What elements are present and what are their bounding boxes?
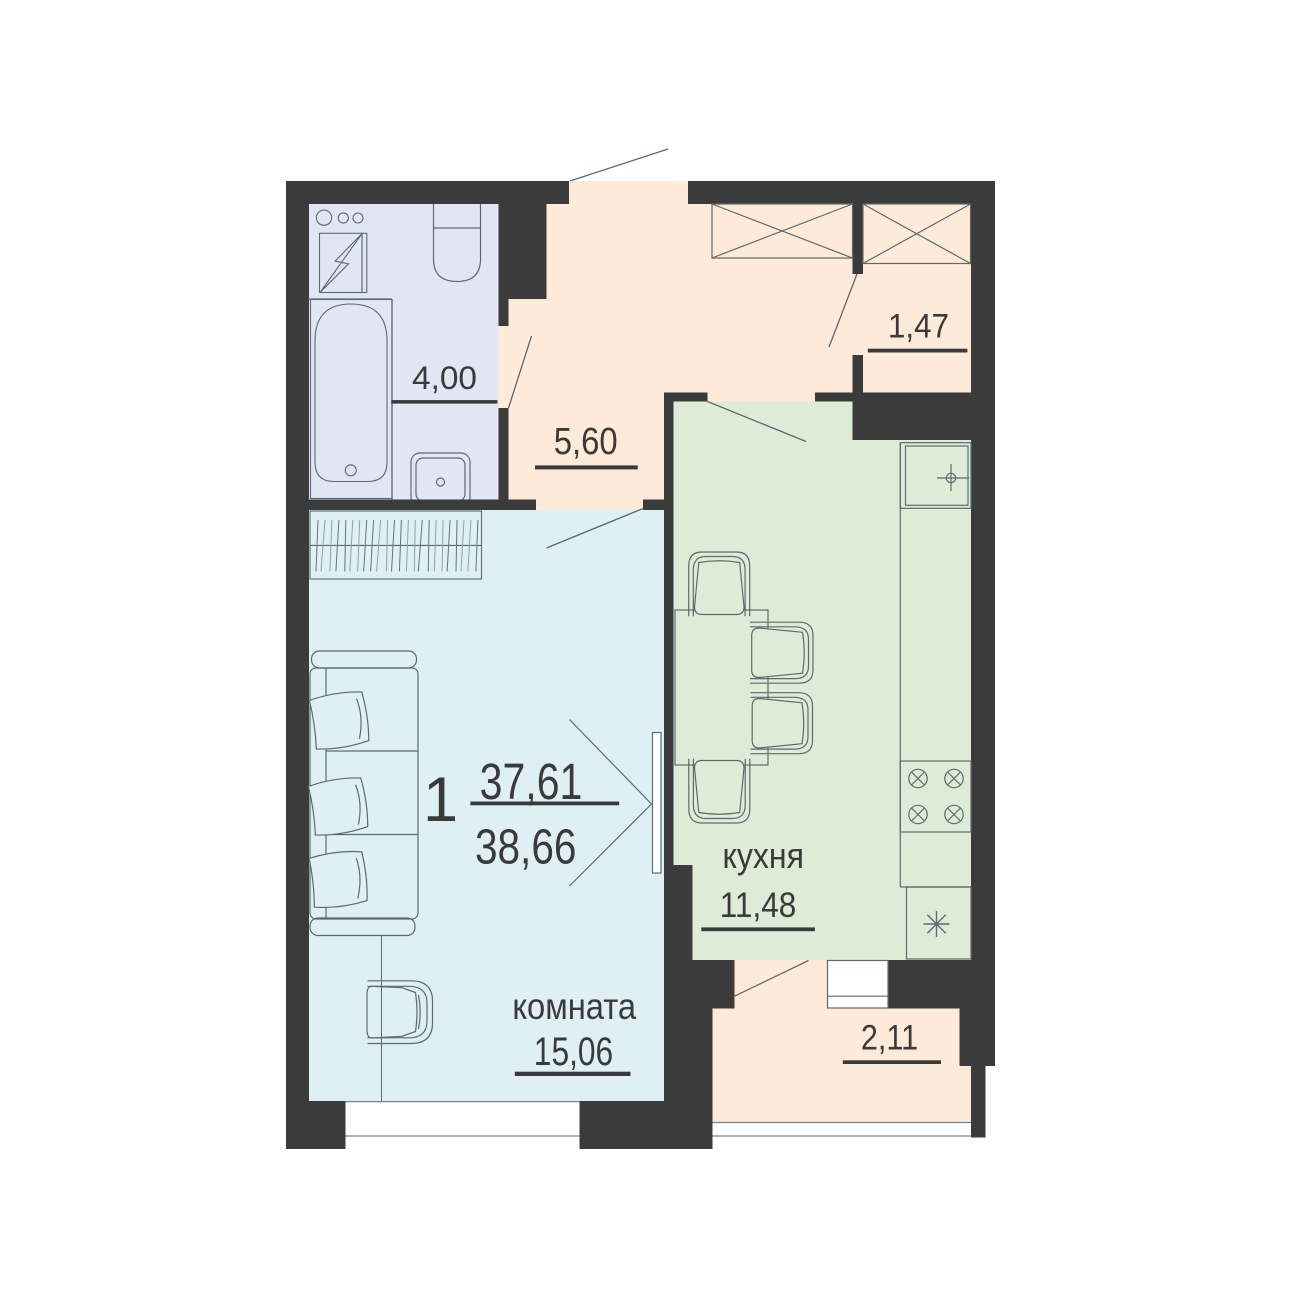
- svg-text:1,47: 1,47: [888, 308, 949, 346]
- svg-text:11,48: 11,48: [720, 885, 797, 925]
- svg-text:37,61: 37,61: [480, 753, 583, 810]
- svg-text:2,11: 2,11: [861, 1018, 918, 1058]
- svg-text:4,00: 4,00: [412, 360, 477, 396]
- svg-text:5,60: 5,60: [554, 421, 618, 463]
- svg-text:1: 1: [423, 765, 458, 835]
- svg-text:38,66: 38,66: [475, 821, 577, 875]
- svg-text:15,06: 15,06: [534, 1030, 613, 1074]
- svg-text:кухня: кухня: [722, 835, 804, 876]
- svg-text:комната: комната: [512, 986, 636, 1027]
